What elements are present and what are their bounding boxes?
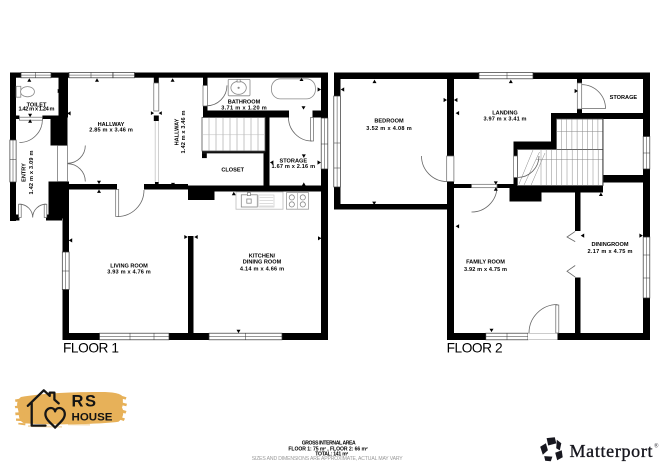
svg-text:2.85 m x 3.46 m: 2.85 m x 3.46 m (89, 127, 133, 133)
svg-text:DINING ROOM: DINING ROOM (243, 260, 282, 266)
svg-text:SIZES AND DIMENSIONS ARE APPRO: SIZES AND DIMENSIONS ARE APPROXIMATE, AC… (252, 456, 404, 462)
svg-text:BEDROOM: BEDROOM (374, 119, 404, 125)
svg-text:2.17 m x 4.75 m: 2.17 m x 4.75 m (588, 249, 633, 255)
svg-text:3.93 m x 4.76 m: 3.93 m x 4.76 m (107, 270, 151, 276)
svg-text:STORAGE: STORAGE (610, 95, 638, 101)
svg-text:DININGROOM: DININGROOM (592, 242, 629, 248)
svg-text:®: ® (654, 443, 659, 450)
svg-text:ENTRY: ENTRY (21, 163, 27, 182)
svg-text:1.42 m x 1.24 m: 1.42 m x 1.24 m (19, 107, 55, 113)
svg-text:FLOOR 2: FLOOR 2 (447, 340, 503, 355)
svg-text:3.71 m x 1.20 m: 3.71 m x 1.20 m (221, 105, 267, 111)
svg-text:HALLWAY: HALLWAY (174, 118, 180, 145)
svg-text:1.67 m x 2.16 m: 1.67 m x 2.16 m (272, 164, 316, 170)
svg-text:HOUSE: HOUSE (72, 412, 113, 424)
svg-text:4.14 m x 4.66 m: 4.14 m x 4.66 m (240, 266, 284, 272)
svg-text:FLOOR 1: FLOOR 1 (63, 340, 119, 355)
svg-text:CLOSET: CLOSET (221, 168, 244, 174)
svg-text:1.42 m x 3.09 m: 1.42 m x 3.09 m (29, 150, 35, 194)
svg-text:3.52 m x 4.08 m: 3.52 m x 4.08 m (366, 126, 411, 132)
svg-text:3.97 m x 3.41 m: 3.97 m x 3.41 m (484, 116, 527, 122)
svg-text:FAMILY ROOM: FAMILY ROOM (466, 260, 505, 266)
svg-text:1.42 m x 3.46 m: 1.42 m x 3.46 m (181, 110, 187, 153)
svg-text:3.92 m x 4.75 m: 3.92 m x 4.75 m (464, 267, 507, 273)
svg-text:Matterport: Matterport (570, 441, 653, 461)
